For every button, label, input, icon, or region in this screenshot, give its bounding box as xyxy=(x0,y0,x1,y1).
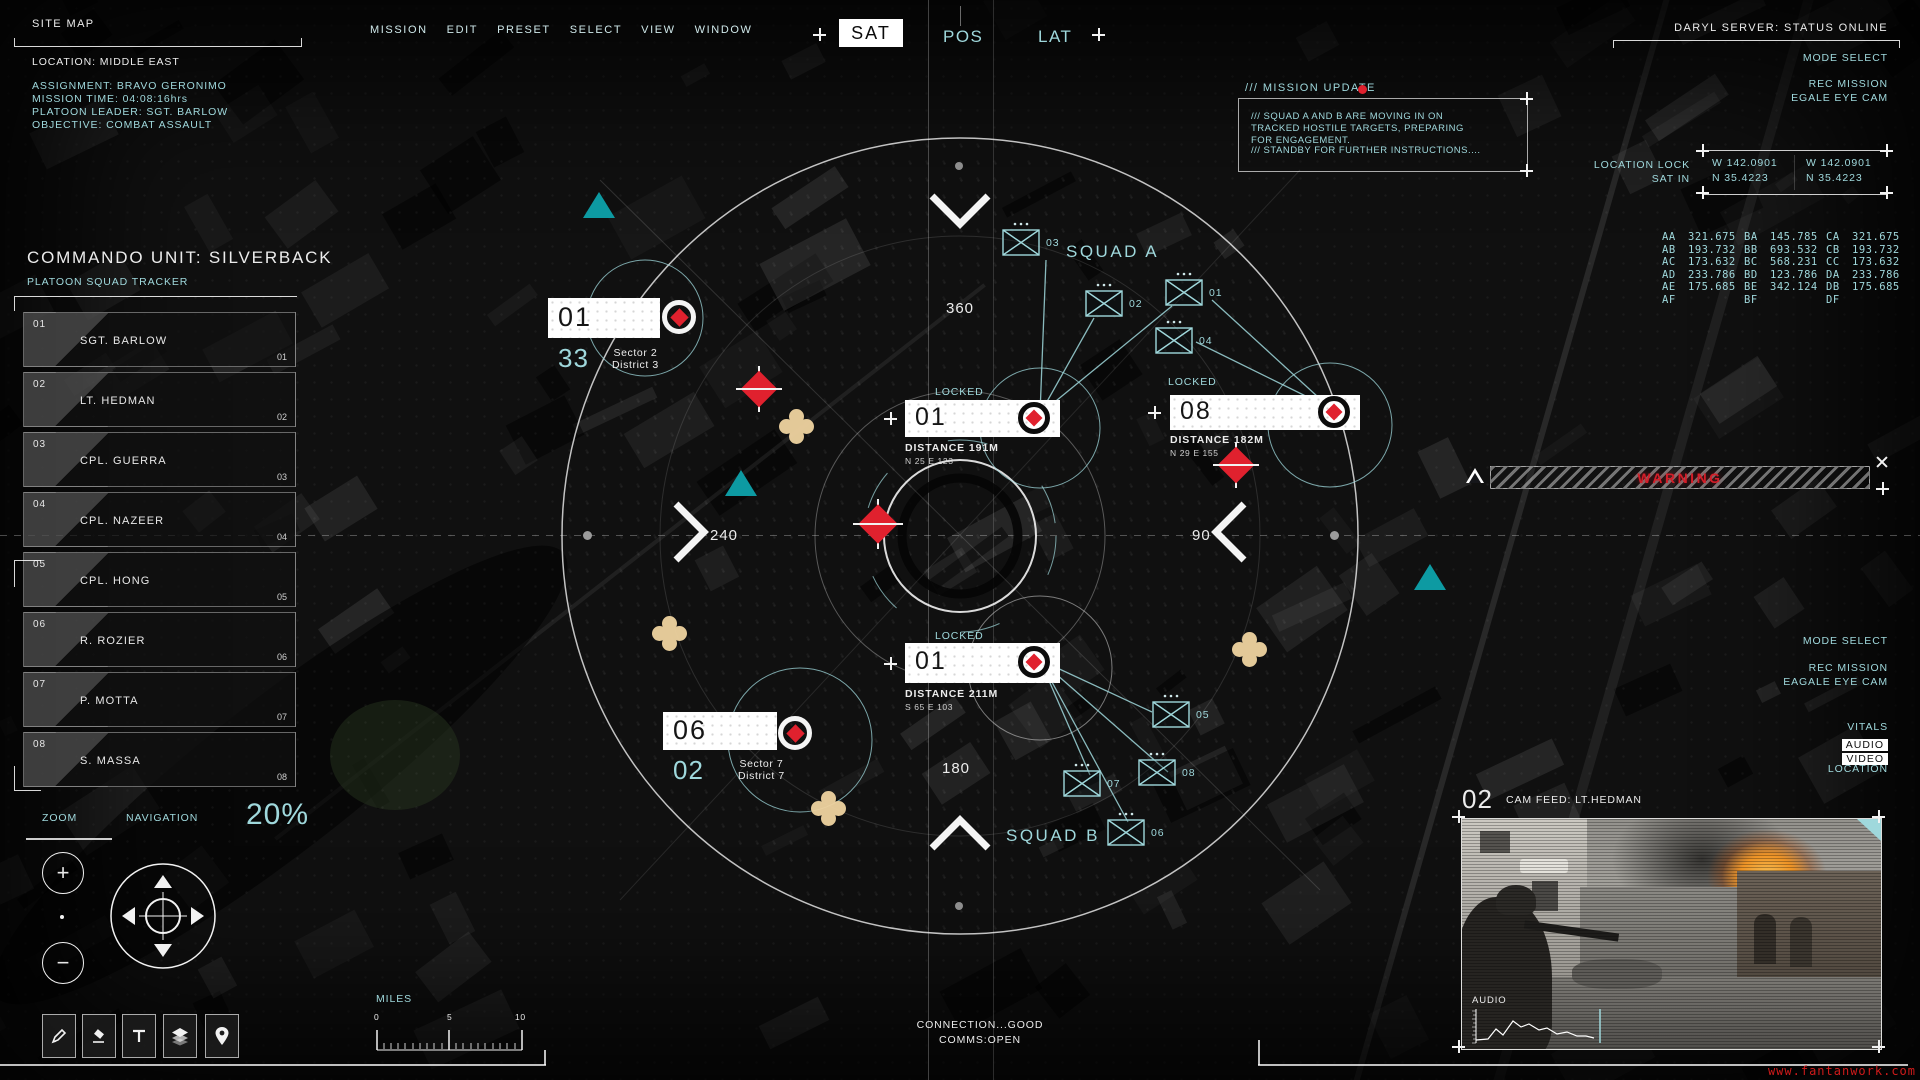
locked-ring-marker xyxy=(1018,646,1050,678)
warning-label: WARNING xyxy=(1637,470,1722,486)
tracker-sector: Sector 7District 7 xyxy=(738,758,785,782)
menu-bar: MISSION EDIT PRESET SELECT VIEW WINDOW xyxy=(370,24,753,36)
clover-marker xyxy=(662,626,677,641)
target-ring-marker[interactable] xyxy=(662,300,696,334)
squad-member-row[interactable]: 06R. ROZIER06 xyxy=(23,612,296,667)
mode-select-label[interactable]: MODE SELECT xyxy=(1803,52,1888,64)
squad-member-row[interactable]: 04CPL. NAZEER04 xyxy=(23,492,296,547)
coord-1: W 142.0901N 35.4223 xyxy=(1712,156,1778,186)
assignment: ASSIGNMENT: BRAVO GERONIMO xyxy=(32,80,228,93)
menu-window[interactable]: WINDOW xyxy=(695,24,753,36)
eraser-icon xyxy=(90,1027,108,1045)
squad-member-row[interactable]: 05CPL. HONG05 xyxy=(23,552,296,607)
text-tool-icon xyxy=(130,1027,148,1045)
plus-icon xyxy=(1520,164,1533,177)
squad-member-row[interactable]: 01SGT. BARLOW01 xyxy=(23,312,296,367)
member-name: R. ROZIER xyxy=(80,635,146,647)
zoom-out-button[interactable]: − xyxy=(42,942,84,984)
feed-audio-label: AUDIO xyxy=(1472,995,1507,1006)
audio-waveform xyxy=(1468,1007,1618,1047)
squad-tracker-subtitle: PLATOON SQUAD TRACKER xyxy=(27,276,188,288)
plus-icon xyxy=(1872,810,1885,823)
server-status: DARYL SERVER: STATUS ONLINE xyxy=(1674,22,1888,34)
objective: OBJECTIVE: COMBAT ASSAULT xyxy=(32,119,228,132)
zoom-dot xyxy=(60,915,64,919)
locked-coord: N 25 E 123 xyxy=(905,456,954,466)
member-name: CPL. NAZEER xyxy=(80,515,164,527)
connection-line: CONNECTION...GOOD xyxy=(880,1018,1080,1033)
mission-info: ASSIGNMENT: BRAVO GERONIMO MISSION TIME:… xyxy=(32,80,228,132)
plus-icon xyxy=(1452,810,1465,823)
squad-member-row[interactable]: 08S. MASSA08 xyxy=(23,732,296,787)
text-tool-button[interactable] xyxy=(122,1014,156,1058)
tracker-id-box[interactable]: 01 xyxy=(548,298,660,338)
miles-ruler xyxy=(376,1028,526,1052)
plus-icon xyxy=(1452,1040,1465,1053)
tracker-count: 02 xyxy=(673,755,704,786)
locked-ring-marker xyxy=(1018,402,1050,434)
teal-triangle-marker[interactable] xyxy=(1414,564,1446,590)
plus-icon xyxy=(1880,144,1893,157)
target-ring-marker[interactable] xyxy=(778,716,812,750)
locked-label: LOCKED xyxy=(1168,376,1217,388)
menu-select[interactable]: SELECT xyxy=(570,24,622,36)
bracket xyxy=(14,38,302,47)
unit-envelope-icons xyxy=(1003,223,1202,845)
plus-icon[interactable] xyxy=(813,28,826,41)
squad-member-row[interactable]: 03CPL. GUERRA03 xyxy=(23,432,296,487)
member-name: CPL. GUERRA xyxy=(80,455,167,467)
compass-heading-north: 360 xyxy=(946,300,974,317)
locked-coord: S 65 E 103 xyxy=(905,702,953,712)
comms-line: COMMS:OPEN xyxy=(880,1033,1080,1048)
pencil-icon xyxy=(50,1027,68,1045)
zoom-value: 20% xyxy=(246,798,309,832)
chevron-icons xyxy=(676,196,1244,848)
tracker-count: 33 xyxy=(558,343,589,374)
location-label: LOCATION: MIDDLE EAST xyxy=(32,56,180,68)
zoom-in-button[interactable]: + xyxy=(42,852,84,894)
layers-tool-button[interactable] xyxy=(163,1014,197,1058)
plus-icon xyxy=(1520,92,1533,105)
plus-icon xyxy=(884,657,897,670)
lat-label[interactable]: LAT xyxy=(1038,27,1072,47)
member-name: SGT. BARLOW xyxy=(80,335,167,347)
squad-a-label: SQUAD A xyxy=(1066,242,1159,262)
bracket xyxy=(1613,40,1900,48)
cam-feed-title: CAM FEED: LT.HEDMAN xyxy=(1506,794,1642,806)
mission-update-box: /// SQUAD A AND B ARE MOVING IN ON TRACK… xyxy=(1238,98,1528,172)
pin-tool-button[interactable] xyxy=(205,1014,239,1058)
locked-target-id: 08 xyxy=(1180,397,1212,426)
compass-heading-east: 90 xyxy=(1192,527,1211,544)
mission-update-line1: /// SQUAD A AND B ARE MOVING IN ON TRACK… xyxy=(1251,111,1481,147)
menu-edit[interactable]: EDIT xyxy=(447,24,478,36)
envelope-label: 02 xyxy=(1129,298,1142,310)
warning-bar: WARNING xyxy=(1490,466,1870,489)
envelope-icon xyxy=(1166,273,1202,305)
site-map-title: SITE MAP xyxy=(32,18,95,30)
envelope-icon xyxy=(1153,695,1189,727)
watermark: www.fantanwork.com xyxy=(1768,1064,1916,1078)
hostile-diamond-marker[interactable] xyxy=(1213,442,1259,488)
sat-button[interactable]: SAT xyxy=(839,19,903,47)
locked-label: LOCKED xyxy=(935,630,984,642)
envelope-icon xyxy=(1064,764,1100,796)
hostile-diamond-marker[interactable] xyxy=(853,499,903,549)
locked-distance: DISTANCE 211M xyxy=(905,688,998,700)
menu-view[interactable]: VIEW xyxy=(641,24,676,36)
squad-member-row[interactable]: 07P. MOTTA07 xyxy=(23,672,296,727)
record-dot xyxy=(1358,85,1367,94)
location-toggle[interactable]: LOCATION xyxy=(1828,763,1888,775)
envelope-label: 01 xyxy=(1209,287,1222,299)
connection-status: CONNECTION...GOOD COMMS:OPEN xyxy=(880,1018,1080,1048)
plus-icon xyxy=(1696,186,1709,199)
tracker-id-box[interactable]: 06 xyxy=(663,712,777,750)
member-name: S. MASSA xyxy=(80,755,141,767)
plus-icon xyxy=(1696,144,1709,157)
squad-member-row[interactable]: 02LT. HEDMAN02 xyxy=(23,372,296,427)
locked-ring-marker xyxy=(1318,396,1350,428)
locked-target-box[interactable]: 01 xyxy=(905,643,1060,683)
bracket xyxy=(14,296,297,311)
scale-tick-10: 10 xyxy=(515,1012,526,1022)
squad-b-label: SQUAD B xyxy=(1006,826,1100,846)
navigation-dpad[interactable] xyxy=(105,858,221,974)
envelope-label: 05 xyxy=(1196,709,1209,721)
plus-icon xyxy=(884,412,897,425)
hostile-diamond-marker[interactable] xyxy=(736,366,782,412)
mission-time: MISSION TIME: 04:08:16hrs xyxy=(32,93,228,106)
pin-icon xyxy=(214,1026,230,1046)
close-icon[interactable] xyxy=(1876,456,1888,468)
plus-icon[interactable] xyxy=(1092,28,1105,41)
mission-update-title: /// MISSION UPDATE xyxy=(1245,82,1376,94)
tracker-id: 01 xyxy=(558,302,592,333)
teal-triangle-marker[interactable] xyxy=(583,192,615,218)
locked-distance: DISTANCE 182M xyxy=(1170,434,1264,446)
cam-feed-viewport[interactable]: AUDIO xyxy=(1461,818,1882,1050)
eraser-tool-button[interactable] xyxy=(82,1014,116,1058)
tracker-id: 06 xyxy=(673,715,707,746)
bracket xyxy=(14,560,41,587)
pos-label[interactable]: POS xyxy=(943,27,983,47)
compass-heading-west: 240 xyxy=(710,527,738,544)
plus-icon xyxy=(1872,1040,1885,1053)
locked-coord: N 29 E 155 xyxy=(1170,448,1219,458)
locked-target-box[interactable]: 01 xyxy=(905,400,1060,437)
compass-heading-south: 180 xyxy=(942,760,970,777)
layers-icon xyxy=(170,1026,190,1046)
rec-mission-label-2[interactable]: REC MISSION xyxy=(1809,662,1888,674)
clover-marker xyxy=(1242,642,1257,657)
location-lock-label: LOCATION LOCK SAT IN xyxy=(1560,158,1690,186)
locked-target-id: 01 xyxy=(915,403,947,432)
plus-icon xyxy=(1880,186,1893,199)
cam-mode-label[interactable]: EGALE EYE CAM xyxy=(1791,92,1888,104)
bottom-frame-line xyxy=(0,1064,546,1066)
coord-table-rows: AA321.675BA145.785CA321.675 AB193.732BB6… xyxy=(1662,231,1908,306)
pencil-tool-button[interactable] xyxy=(42,1014,76,1058)
coord-data-table: AA321.675BA145.785CA321.675 AB193.732BB6… xyxy=(1662,231,1908,306)
scale-tick-0: 0 xyxy=(374,1012,379,1022)
locked-label: LOCKED xyxy=(935,386,984,398)
zoom-underline xyxy=(26,838,112,840)
envelope-label: 06 xyxy=(1151,827,1164,839)
mission-update-line2: /// STANDBY FOR FURTHER INSTRUCTIONS.... xyxy=(1251,145,1491,156)
bottom-frame-tick xyxy=(544,1050,546,1065)
member-name: P. MOTTA xyxy=(80,695,139,707)
mode-select-label-2[interactable]: MODE SELECT xyxy=(1803,635,1888,647)
plus-icon[interactable] xyxy=(1876,482,1889,495)
envelope-label: 04 xyxy=(1199,335,1212,347)
clover-marker xyxy=(821,801,836,816)
menu-preset[interactable]: PRESET xyxy=(497,24,551,36)
menu-mission[interactable]: MISSION xyxy=(370,24,428,36)
envelope-icon xyxy=(1086,284,1122,316)
locked-target-box[interactable]: 08 xyxy=(1170,395,1360,430)
scale-tick-5: 5 xyxy=(447,1012,452,1022)
cam-feed-number: 02 xyxy=(1462,784,1493,815)
platoon-leader: PLATOON LEADER: SGT. BARLOW xyxy=(32,106,228,119)
vitals-label: VITALS xyxy=(1847,721,1888,733)
teal-triangle-marker[interactable] xyxy=(725,470,757,496)
member-name: CPL. HONG xyxy=(80,575,150,587)
coords-frame: W 142.0901N 35.4223 W 142.0901N 35.4223 xyxy=(1702,150,1888,195)
envelope-icon xyxy=(1139,753,1175,785)
commando-unit-title: COMMANDO UNIT: SILVERBACK xyxy=(27,248,332,268)
cam-mode-label-2[interactable]: EAGALE EYE CAM xyxy=(1783,676,1888,688)
tactical-map-screen: 03 02 01 04 05 08 07 06 SQUAD A SQUAD B … xyxy=(0,0,1920,1080)
envelope-icon xyxy=(1003,223,1039,255)
envelope-label: 03 xyxy=(1046,237,1059,249)
locked-distance: DISTANCE 191M xyxy=(905,442,999,454)
plus-icon xyxy=(1148,406,1161,419)
locked-target-id: 01 xyxy=(915,647,947,676)
warning-triangle-inner xyxy=(1469,473,1481,483)
tracker-sector: Sector 2District 3 xyxy=(612,347,659,371)
bottom-frame-tick xyxy=(1258,1040,1260,1065)
zoom-label: ZOOM xyxy=(42,812,77,824)
miles-label: MILES xyxy=(376,993,412,1005)
coord-2: W 142.0901N 35.4223 xyxy=(1806,156,1872,186)
envelope-label: 07 xyxy=(1107,778,1120,790)
rec-mission-label[interactable]: REC MISSION xyxy=(1809,78,1888,90)
member-name: LT. HEDMAN xyxy=(80,395,156,407)
navigation-label: NAVIGATION xyxy=(126,812,198,824)
envelope-label: 08 xyxy=(1182,767,1195,779)
clover-marker xyxy=(789,419,804,434)
